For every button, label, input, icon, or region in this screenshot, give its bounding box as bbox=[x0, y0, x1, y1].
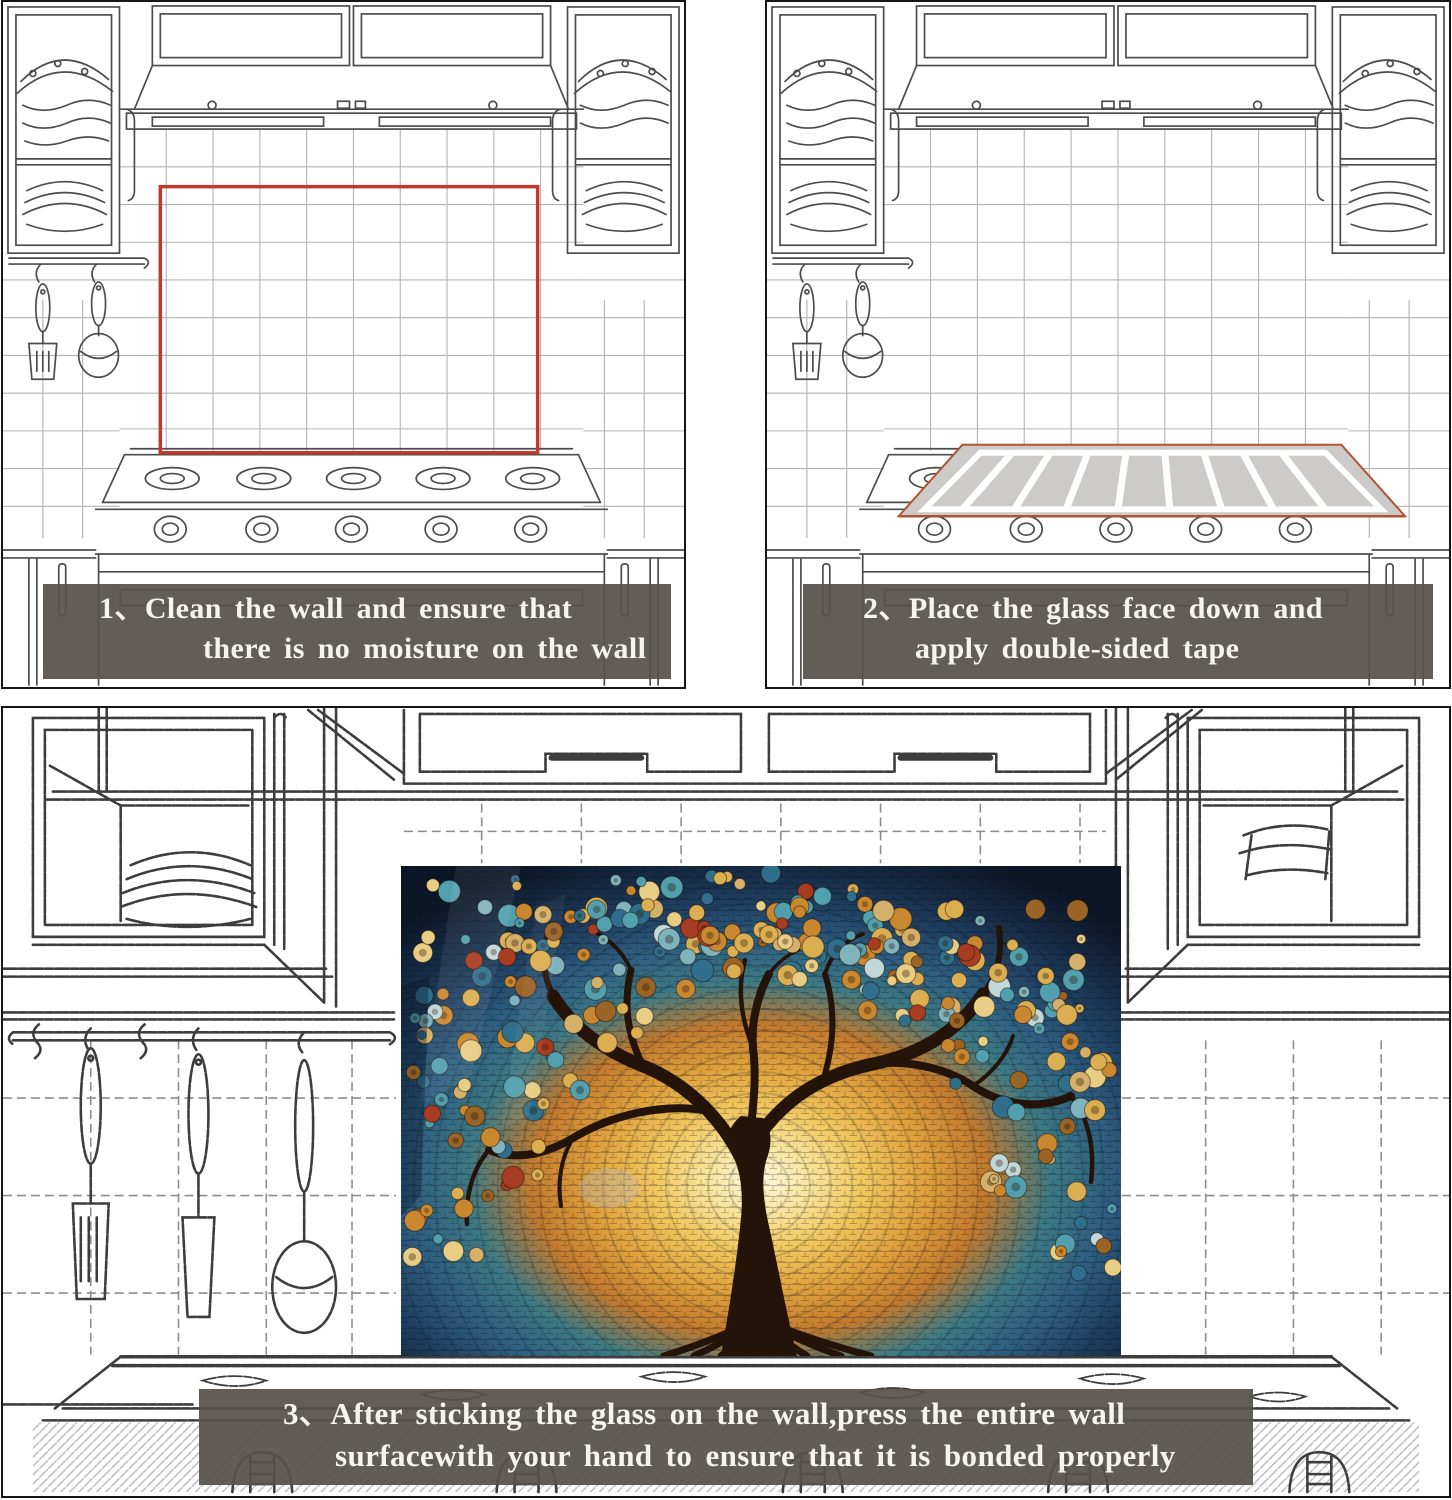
step-2-text-line2: apply double-sided tape bbox=[915, 629, 1433, 669]
step-2-text-line1: Place the glass face down and bbox=[909, 592, 1323, 625]
instruction-sheet: 1、Clean the wall and ensure that there i… bbox=[0, 0, 1452, 1500]
hanging-utensils bbox=[9, 1024, 395, 1332]
wall-cabinet-left bbox=[3, 708, 394, 1019]
step-3-caption: 3、After sticking the glass on the wall,p… bbox=[199, 1389, 1253, 1485]
step-3-text-line2: surfacewith your hand to ensure that it … bbox=[335, 1435, 1253, 1477]
installed-glass-backsplash bbox=[401, 866, 1121, 1356]
step-2-number: 2、 bbox=[863, 592, 909, 625]
step-1-number: 1、 bbox=[99, 592, 145, 625]
step-3-panel: 3、After sticking the glass on the wall,p… bbox=[1, 706, 1451, 1498]
step-1-text-line2: there is no moisture on the wall bbox=[203, 629, 671, 669]
installation-area-marker bbox=[160, 187, 537, 453]
step-3-text-line1: After sticking the glass on the wall,pre… bbox=[330, 1396, 1125, 1431]
step-2-panel: 2、Place the glass face down and apply do… bbox=[765, 0, 1451, 689]
step-1-text-line1: Clean the wall and ensure that bbox=[145, 592, 572, 625]
glass-face-down-with-tape bbox=[899, 445, 1406, 516]
step-3-number: 3、 bbox=[283, 1396, 330, 1431]
step-1-panel: 1、Clean the wall and ensure that there i… bbox=[1, 0, 686, 689]
mosaic-glass-art bbox=[401, 866, 1121, 1356]
step-2-caption: 2、Place the glass face down and apply do… bbox=[803, 584, 1433, 679]
step-1-caption: 1、Clean the wall and ensure that there i… bbox=[43, 584, 671, 679]
